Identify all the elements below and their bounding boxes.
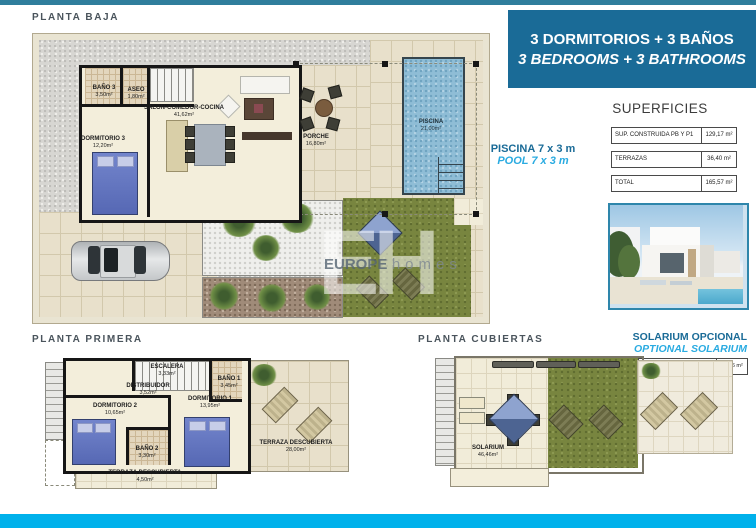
superficies-row: TERRAZAS 36,40 m² — [611, 151, 737, 168]
floor-plan-planta-primera: ESCALERA 3,33m² DISTRIBUIDOR 3,52m² BAÑO… — [45, 356, 347, 488]
room-label-terraza-front: TERRAZA DESCUBIERTA 4,50m² — [109, 470, 182, 483]
room-label-piscina: PISCINA 21,00m² — [419, 119, 443, 132]
pergola-post — [382, 61, 388, 67]
plan-title-planta-cubiertas: PLANTA CUBIERTAS — [418, 334, 543, 345]
photo-villa-opening — [660, 253, 684, 273]
bedrooms-banner: 3 DORMITORIOS + 3 BAÑOS 3 BEDROOMS + 3 B… — [508, 10, 756, 88]
planting-bed-dark — [202, 277, 343, 318]
room-label-bano1: BAÑO 1 3,45m² — [218, 376, 241, 389]
room-label-escalera: ESCALERA 3,33m² — [150, 364, 183, 377]
sun-lounger — [680, 392, 718, 430]
pergola-slat — [492, 361, 534, 368]
room-label-bano3: BAÑO 3 3,50m² — [93, 85, 116, 98]
plant — [303, 284, 331, 310]
dining-chair — [225, 139, 235, 150]
plant — [640, 363, 662, 379]
pergola-slat — [536, 361, 576, 368]
floor-plan-planta-cubiertas: SOLARIUM 46,46m² — [435, 356, 731, 488]
bed-dormitorio3 — [92, 152, 138, 215]
row-label: TERRAZAS — [612, 152, 701, 167]
dining-chair — [185, 139, 195, 150]
room-label-porche: PORCHE 16,80m² — [303, 134, 329, 147]
sofa — [240, 76, 290, 94]
superficies-row: SUP. CONSTRUIDA PB Y P1 129,17 m² — [611, 127, 737, 144]
bed-pillow — [97, 156, 114, 167]
room-label-bano2: BAÑO 2 3,30m² — [136, 446, 159, 459]
optional-solarium-area — [637, 360, 733, 454]
room-label-dormitorio1: DORMITORIO 1 13,95m² — [188, 396, 232, 409]
solarium-note-en: OPTIONAL SOLARIUM — [627, 343, 747, 355]
interior-wall — [168, 395, 171, 465]
pergola-post — [382, 211, 388, 217]
interior-stairs — [150, 68, 194, 102]
pool-size-note: PISCINA 7 x 3 m POOL 7 x 3 m — [478, 143, 588, 167]
photo-loungers — [640, 280, 666, 285]
tv-bench — [242, 132, 292, 140]
bench — [459, 412, 485, 424]
pergola-post — [473, 211, 479, 217]
row-label: TOTAL — [612, 176, 701, 191]
villa-photo — [608, 203, 749, 310]
dining-chair — [225, 126, 235, 137]
exterior-stairs — [435, 358, 456, 466]
plan-title-planta-baja: PLANTA BAJA — [32, 12, 119, 23]
banner-line-en: 3 BEDROOMS + 3 BATHROOMS — [518, 50, 746, 69]
porch-table — [315, 99, 333, 117]
car-windshield — [134, 246, 146, 274]
sun-lounger — [640, 392, 678, 430]
pool-note-en: POOL 7 x 3 m — [478, 155, 588, 167]
plant — [250, 364, 278, 386]
bed-pillow — [77, 423, 93, 433]
row-label: SUP. CONSTRUIDA PB Y P1 — [612, 128, 701, 143]
car-sunroof — [104, 248, 118, 272]
garden-lawn — [343, 198, 471, 317]
pool-note-es: PISCINA 7 x 3 m — [478, 143, 588, 155]
dining-table — [194, 124, 226, 166]
pergola-slat — [578, 361, 620, 368]
interior-wall — [66, 395, 171, 398]
car-top-view — [71, 241, 170, 281]
room-label-distribuidor: DISTRIBUIDOR 3,52m² — [126, 383, 169, 396]
row-value: 129,17 m² — [701, 128, 736, 143]
photo-pool — [698, 289, 743, 304]
table-decor — [254, 104, 263, 113]
dining-chair — [185, 152, 195, 163]
room-label-solarium: SOLARIUM 46,46m² — [472, 445, 504, 458]
sun-lounger — [262, 387, 299, 424]
coffee-table — [244, 98, 274, 120]
room-label-terraza-lateral: TERRAZA DESCUBIERTA 28,00m² — [260, 440, 333, 453]
bed-pillow — [117, 156, 134, 167]
pergola-post — [473, 61, 479, 67]
bench — [459, 397, 485, 409]
plant — [209, 282, 239, 310]
plan-title-planta-primera: PLANTA PRIMERA — [32, 334, 143, 345]
floor-plan-planta-baja: BAÑO 3 3,50m² ASEO 1,80m² SALON-COMEDOR-… — [32, 33, 490, 324]
photo-stone-pillar — [688, 249, 696, 279]
terrace-lateral — [245, 360, 349, 472]
plant — [257, 284, 287, 312]
room-label-dormitorio3: DORMITORIO 3 12,20m² — [81, 136, 125, 149]
room-label-aseo: ASEO 1,80m² — [127, 87, 144, 100]
room-label-dormitorio2: DORMITORIO 2 10,65m² — [93, 403, 137, 416]
bed-pillow — [209, 421, 226, 431]
photo-side-wing — [714, 251, 740, 273]
photo-trees — [618, 245, 640, 279]
superficies-row: TOTAL 165,57 m² — [611, 175, 737, 192]
interior-wall — [147, 104, 150, 217]
top-accent-bar — [0, 0, 756, 5]
interior-wall — [120, 68, 123, 104]
bed-pillow — [95, 423, 111, 433]
dining-chair — [225, 152, 235, 163]
bottom-accent-bar — [0, 514, 756, 528]
room-label-salon: SALON-COMEDOR-COCINA 41,62m² — [144, 105, 224, 118]
bed-pillow — [189, 421, 206, 431]
photo-loungers — [670, 281, 692, 285]
row-value: 165,57 m² — [701, 176, 736, 191]
solarium-note-es: SOLARIUM OPCIONAL — [627, 331, 747, 343]
roof-terrace-lower — [450, 468, 549, 487]
plant — [251, 235, 281, 261]
superficies-title: SUPERFICIES — [590, 101, 730, 116]
banner-line-es: 3 DORMITORIOS + 3 BAÑOS — [530, 30, 734, 49]
brochure-page: PLANTA BAJA — [0, 0, 756, 528]
bed-dormitorio1 — [184, 417, 230, 467]
car-rear-glass — [88, 246, 100, 274]
sun-lounger — [296, 407, 333, 444]
solarium-option-note: SOLARIUM OPCIONAL OPTIONAL SOLARIUM — [627, 331, 747, 355]
bed-dormitorio2 — [72, 419, 116, 465]
dining-chair — [185, 126, 195, 137]
interior-wall — [147, 68, 150, 104]
row-value: 36,40 m² — [701, 152, 736, 167]
